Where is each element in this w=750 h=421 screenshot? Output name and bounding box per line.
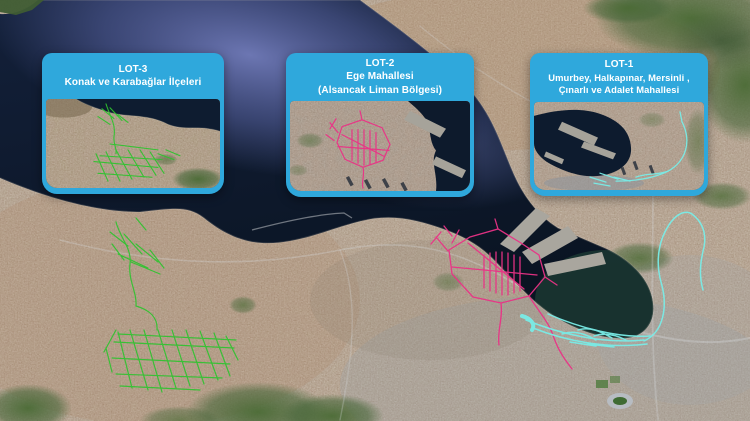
lot2-subtitle-line: Ege Mahallesi xyxy=(346,70,413,83)
lot3-subtitle-line: Konak ve Karabağlar İlçeleri xyxy=(65,76,202,89)
lot3-title-line: LOT-3 xyxy=(119,63,148,76)
lot1-inset-map xyxy=(534,102,704,190)
lot3-card-title: LOT-3 Konak ve Karabağlar İlçeleri xyxy=(42,53,224,99)
lot1-subtitle-line: Umurbey, Halkapınar, Mersinli , xyxy=(548,72,690,85)
lot1-callout-card: LOT-1 Umurbey, Halkapınar, Mersinli , Çı… xyxy=(530,53,708,196)
lot3-inset-map xyxy=(46,99,220,188)
lot2-subtitle-line2: (Alsancak Liman Bölgesi) xyxy=(318,84,442,97)
lot2-callout-card: LOT-2 Ege Mahallesi (Alsancak Liman Bölg… xyxy=(286,53,474,197)
izmir-lots-overview: LOT-3 Konak ve Karabağlar İlçeleri xyxy=(0,0,750,421)
lot3-callout-card: LOT-3 Konak ve Karabağlar İlçeleri xyxy=(42,53,224,194)
lot2-title-line: LOT-2 xyxy=(366,57,395,70)
lot2-inset-map xyxy=(290,101,470,191)
lot1-title-line: LOT-1 xyxy=(605,58,634,71)
lot1-subtitle-line2: Çınarlı ve Adalet Mahallesi xyxy=(559,84,680,97)
lot1-card-title: LOT-1 Umurbey, Halkapınar, Mersinli , Çı… xyxy=(530,53,708,102)
lot2-card-title: LOT-2 Ege Mahallesi (Alsancak Liman Bölg… xyxy=(286,53,474,101)
